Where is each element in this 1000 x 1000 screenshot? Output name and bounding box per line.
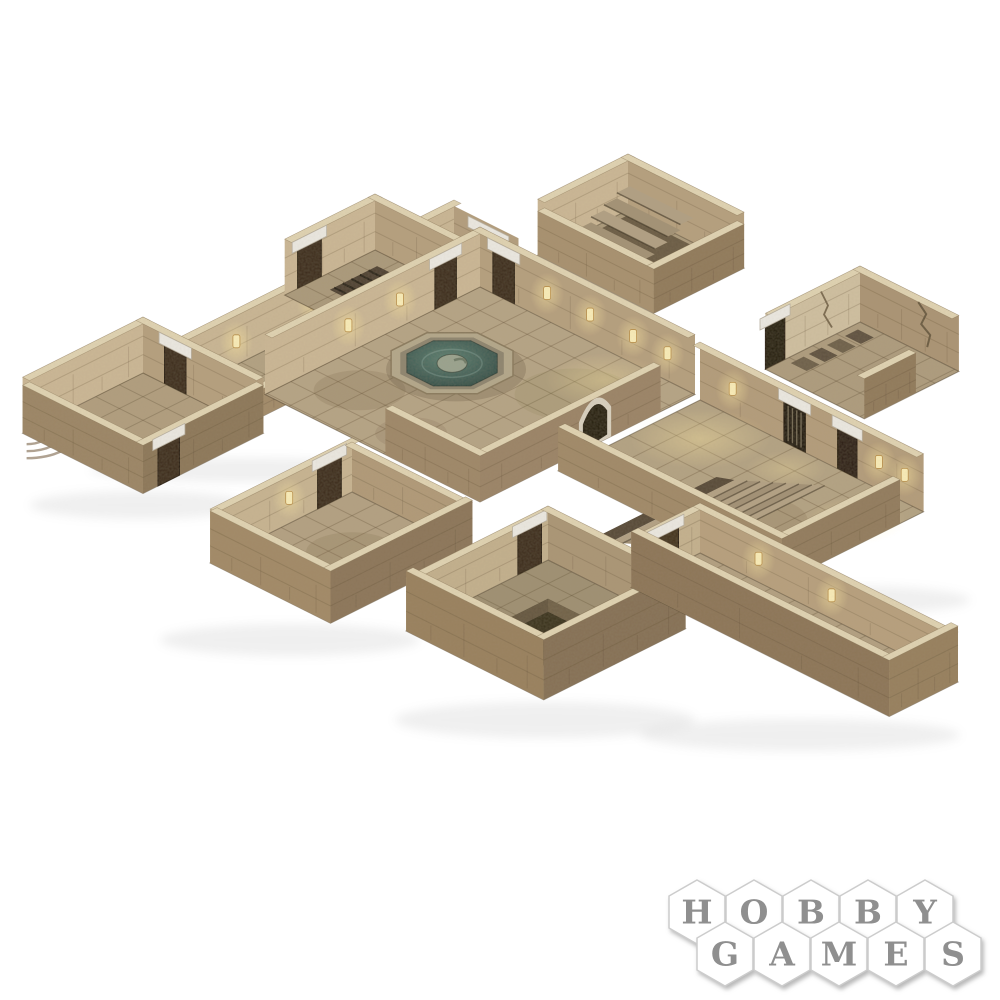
torch-sconce-icon [397, 293, 404, 306]
logo-letter: Y [912, 893, 937, 932]
torch-sconce-icon [828, 589, 835, 602]
torch-sconce-icon [544, 287, 551, 300]
hobby-games-watermark: HOBBYGAMES [669, 880, 981, 986]
fountain-statue [437, 354, 467, 372]
torch-sconce-icon [755, 552, 762, 565]
logo-letter: H [681, 893, 712, 932]
product-photo: Isometric cardboard dungeon terrain set:… [0, 0, 1000, 1000]
torch-light-pool [746, 451, 826, 487]
logo-letter: S [941, 935, 965, 974]
logo-letter: O [740, 893, 769, 932]
torch-sconce-icon [630, 330, 637, 343]
torch-sconce-icon [587, 308, 594, 321]
drop-shadow [640, 719, 960, 751]
torch-sconce-icon [875, 455, 882, 468]
torch-sconce-icon [233, 335, 240, 348]
dungeon-terrain-model: Isometric cardboard dungeon terrain set:… [0, 0, 1000, 1000]
logo-letter: E [883, 935, 908, 974]
torch-sconce-icon [729, 382, 736, 395]
torch-light-pool [630, 409, 770, 469]
torch-sconce-icon [286, 491, 293, 504]
terrain-model-group [23, 154, 959, 716]
logo-letter: M [821, 935, 858, 974]
logo-letter: A [768, 935, 795, 974]
drop-shadow [160, 624, 420, 656]
logo-letter: B [797, 893, 825, 932]
torch-sconce-icon [345, 319, 352, 332]
logo-letter: B [854, 893, 882, 932]
logo-letter: G [711, 935, 739, 974]
torch-sconce-icon [901, 468, 908, 481]
torch-sconce-icon [664, 347, 671, 360]
